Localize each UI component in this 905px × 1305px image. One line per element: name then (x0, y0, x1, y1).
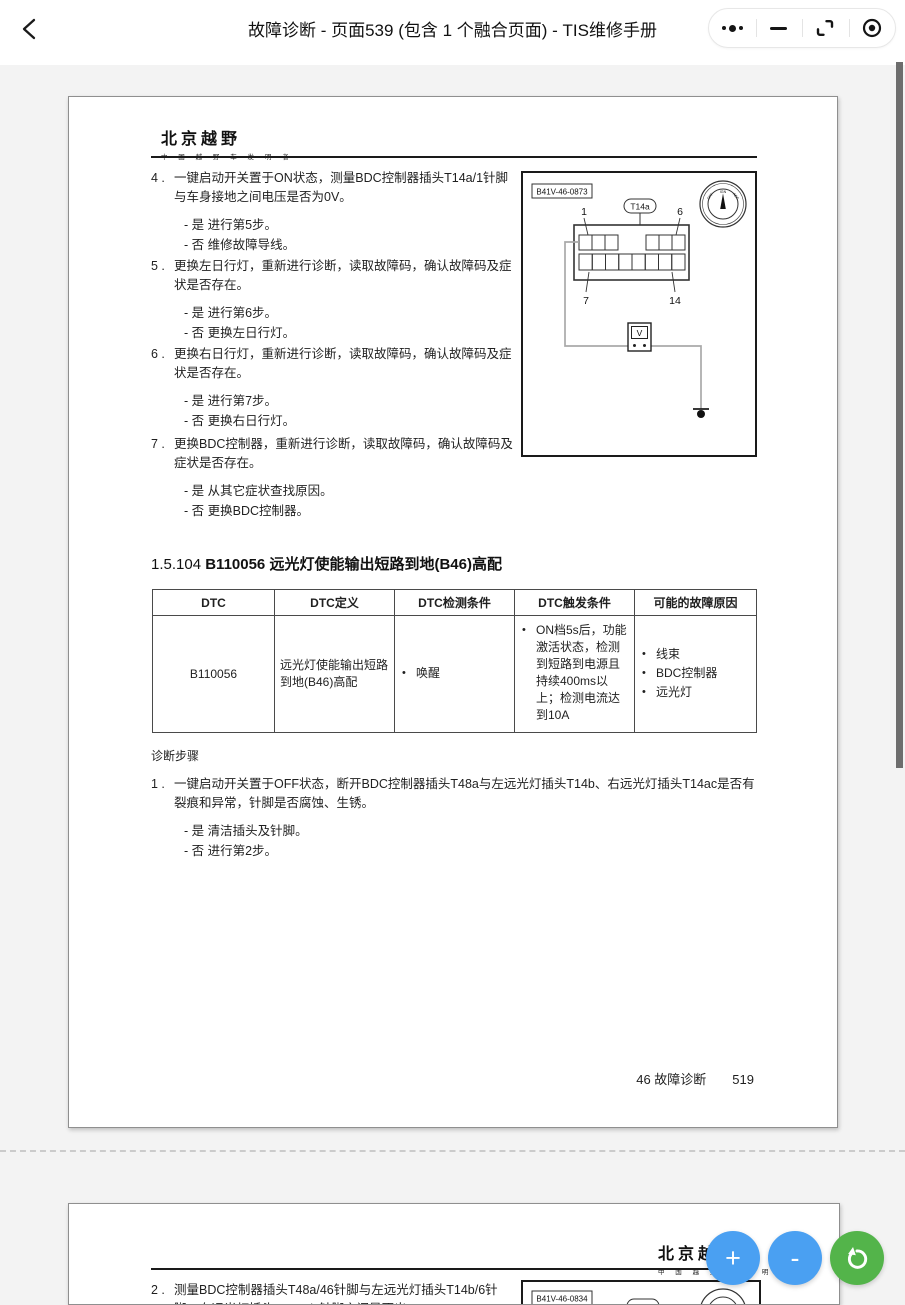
diagram-ref-label: B41V-46-0873 (536, 188, 588, 197)
col-header-dtc: DTC (153, 590, 275, 616)
cell-dtc: B110056 (153, 616, 275, 733)
window-capsule (708, 8, 896, 48)
pin-1-label: 1 (581, 206, 587, 218)
ignition-switch-dial: OFF IGN ACC (700, 181, 746, 227)
pdf-page-1: 北京越野 中 国 越 野 车 发 明 者 4 . 一键启动开关置于ON状态，测量… (68, 96, 838, 1128)
restore-window-button[interactable] (802, 9, 849, 47)
zoom-in-button[interactable]: + (706, 1231, 760, 1285)
section-title-text: 远光灯使能输出短路到地(B46)高配 (265, 556, 502, 573)
step-text: 一键启动开关置于ON状态，测量BDC控制器插头T14a/1针脚与车身接地之间电压… (174, 169, 513, 207)
trigger-item: ON档5s后，功能激活状态，检测到短路到电源且持续400ms以上；检测电流达到1… (536, 622, 629, 724)
step-number: 4 . (151, 169, 174, 255)
page-footer: 46 故障诊断519 (636, 1069, 754, 1088)
step-text: 更换右日行灯，重新进行诊断，读取故障码，确认故障码及症状是否存在。 (174, 345, 513, 383)
step-item-4: 4 . 一键启动开关置于ON状态，测量BDC控制器插头T14a/1针脚与车身接地… (151, 169, 513, 255)
step-text: 更换BDC控制器，重新进行诊断，读取故障码，确认故障码及症状是否存在。 (174, 435, 513, 473)
step-number: 6 . (151, 345, 174, 431)
plus-icon: + (725, 1243, 741, 1274)
step-number: 7 . (151, 435, 174, 521)
step-option-yes: - 是 从其它症状查找原因。 (184, 482, 513, 502)
step-option-no: - 否 更换左日行灯。 (184, 324, 513, 344)
dtc-table: DTC DTC定义 DTC检测条件 DTC触发条件 可能的故障原因 B11005… (152, 589, 757, 733)
dial-ign-label: IGN (720, 190, 727, 194)
cause-item: BDC控制器 (656, 665, 717, 682)
step-text: 测量BDC控制器插头T48a/46针脚与左远光灯插头T14b/6针脚、右远光灯插… (174, 1281, 513, 1305)
step-text: 更换左日行灯，重新进行诊断，读取故障码，确认故障码及症状是否存在。 (174, 257, 513, 295)
detect-item: 唤醒 (416, 665, 440, 682)
step-option-no: - 否 进行第2步。 (184, 842, 764, 862)
step-text: 一键启动开关置于OFF状态，断开BDC控制器插头T48a与左远光灯插头T14b、… (174, 775, 764, 813)
footer-page-number: 519 (732, 1072, 754, 1087)
pin-6-label: 6 (677, 206, 683, 218)
col-header-trigger: DTC触发条件 (515, 590, 635, 616)
wiring-diagram: B41V-46-0873 T14a 1 6 (521, 171, 757, 457)
step-item-5: 5 . 更换左日行灯，重新进行诊断，读取故障码，确认故障码及症状是否存在。 - … (151, 257, 513, 343)
header-rule (151, 1268, 757, 1270)
wiring-diagram-figure: B41V-46-0834 (523, 1282, 759, 1305)
col-header-causes: 可能的故障原因 (635, 590, 757, 616)
zoom-out-button[interactable]: - (768, 1231, 822, 1285)
step-option-yes: - 是 进行第5步。 (184, 216, 513, 236)
step-number: 1 . (151, 775, 174, 861)
pin-14-label: 14 (669, 295, 681, 307)
cell-trigger: ON档5s后，功能激活状态，检测到短路到电源且持续400ms以上；检测电流达到1… (515, 616, 635, 733)
page-separator (0, 1150, 905, 1152)
more-options-button[interactable] (709, 9, 756, 47)
step-item-7: 7 . 更换BDC控制器，重新进行诊断，读取故障码，确认故障码及症状是否存在。 … (151, 435, 513, 521)
col-header-definition: DTC定义 (275, 590, 395, 616)
section-heading: 1.5.104 B110056 远光灯使能输出短路到地(B46)高配 (151, 553, 502, 574)
table-header-row: DTC DTC定义 DTC检测条件 DTC触发条件 可能的故障原因 (153, 590, 757, 616)
voltmeter-v-label: V (637, 328, 643, 338)
step-item-6: 6 . 更换右日行灯，重新进行诊断，读取故障码，确认故障码及症状是否存在。 - … (151, 345, 513, 431)
rotate-button[interactable] (830, 1231, 884, 1285)
step-item-2: 2 . 测量BDC控制器插头T48a/46针脚与左远光灯插头T14b/6针脚、右… (151, 1281, 513, 1305)
close-home-button[interactable] (849, 9, 896, 47)
scrollbar-thumb[interactable] (896, 62, 903, 768)
minimize-icon (770, 27, 787, 30)
dtc-code: B110056 (205, 556, 265, 573)
section-number: 1.5.104 (151, 556, 205, 573)
step-option-yes: - 是 进行第7步。 (184, 392, 513, 412)
minus-icon: - (791, 1243, 800, 1274)
step-number: 5 . (151, 257, 174, 343)
step-option-yes: - 是 进行第6步。 (184, 304, 513, 324)
ground-symbol (693, 409, 709, 418)
restore-window-icon (814, 17, 836, 39)
wiring-diagram-figure: B41V-46-0873 T14a 1 6 (523, 173, 755, 455)
cause-item: 远光灯 (656, 684, 692, 701)
cell-causes: 线束 BDC控制器 远光灯 (635, 616, 757, 733)
step-item-1: 1 . 一键启动开关置于OFF状态，断开BDC控制器插头T48a与左远光灯插头T… (151, 775, 764, 861)
record-circle-icon (860, 16, 884, 40)
diagnosis-steps-title: 诊断步骤 (151, 747, 199, 766)
table-row: B110056 远光灯使能输出短路到地(B46)高配 唤醒 ON档5s后，功能激… (153, 616, 757, 733)
cell-detect: 唤醒 (395, 616, 515, 733)
step-option-no: - 否 更换BDC控制器。 (184, 502, 513, 522)
topbar: 故障诊断 - 页面539 (包含 1 个融合页面) - TIS维修手册 (0, 0, 905, 65)
col-header-detect: DTC检测条件 (395, 590, 515, 616)
step-option-yes: - 是 清洁插头及针脚。 (184, 822, 764, 842)
cause-item: 线束 (656, 646, 680, 663)
step-option-no: - 否 更换右日行灯。 (184, 412, 513, 432)
minimize-button[interactable] (756, 9, 803, 47)
more-dots-icon (722, 25, 743, 32)
pin-7-label: 7 (583, 295, 589, 307)
rotate-ccw-icon (843, 1244, 871, 1272)
footer-chapter: 46 故障诊断 (636, 1072, 706, 1087)
cell-definition: 远光灯使能输出短路到地(B46)高配 (275, 616, 395, 733)
step-option-no: - 否 维修故障导线。 (184, 236, 513, 256)
connector-label: T14a (630, 202, 650, 212)
brand-logo-title: 北京越野 (161, 125, 293, 149)
diagram-ref-label: B41V-46-0834 (536, 1295, 588, 1304)
voltmeter-symbol: V (628, 323, 651, 351)
header-rule (151, 156, 757, 158)
step-number: 2 . (151, 1281, 174, 1305)
